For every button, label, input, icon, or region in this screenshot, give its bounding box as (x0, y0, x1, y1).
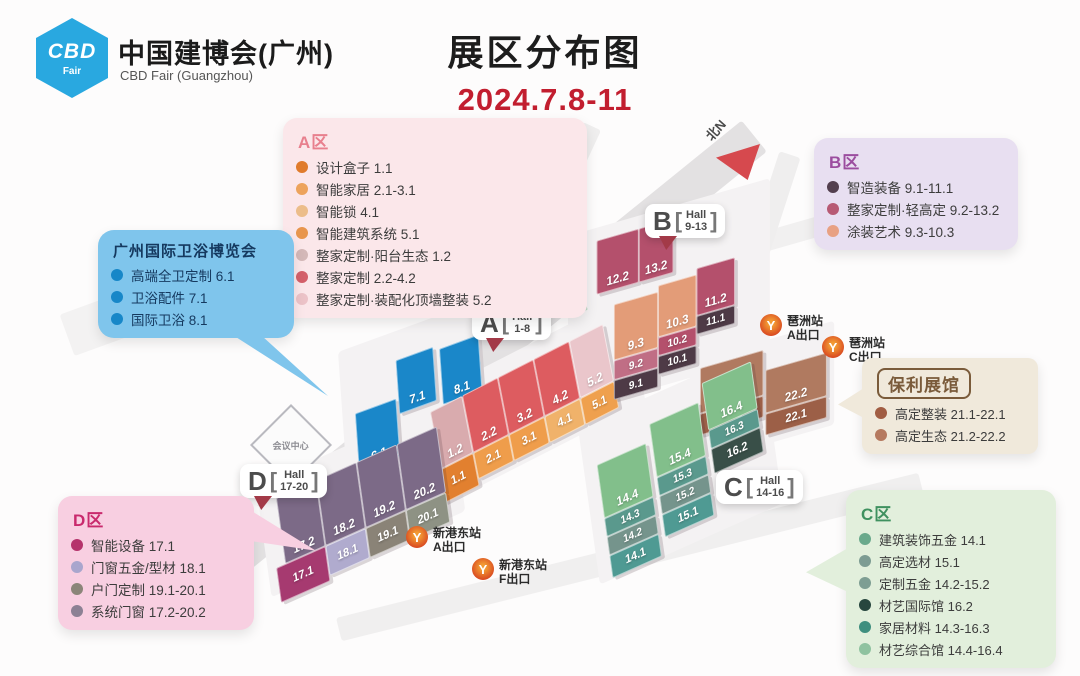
legend-item-label: 智能锁 4.1 (316, 201, 379, 221)
legend-poly-pavilion: 保利展馆 高定整装 21.1-22.1高定生态 21.2-22.2 (862, 358, 1038, 454)
hall-badge-letter: D (248, 468, 267, 494)
legend-area-c: C区 建筑装饰五金 14.1高定选材 15.1定制五金 14.2-15.2材艺国… (846, 490, 1056, 668)
legend-bath-expo: 广州国际卫浴博览会 高端全卫定制 6.1卫浴配件 7.1国际卫浴 8.1 (98, 230, 294, 338)
legend-color-dot (859, 621, 871, 633)
legend-item: 智能锁 4.1 (296, 200, 574, 222)
legend-item: 智能建筑系统 5.1 (296, 222, 574, 244)
legend-color-dot (859, 577, 871, 589)
hall-badge-range: Hall14-16 (756, 475, 784, 499)
legend-item: 整家定制·阳台生态 1.2 (296, 244, 574, 266)
bracket-glyph: ] (710, 210, 717, 232)
legend-item: 高定生态 21.2-22.2 (875, 424, 1025, 446)
legend-item-label: 智能家居 2.1-3.1 (316, 179, 416, 199)
legend-item-label: 整家定制·装配化顶墙整装 5.2 (316, 289, 492, 309)
callout-tail (838, 388, 864, 418)
hall-number-label: 17.1 (279, 558, 328, 592)
legend-area-d: D区 智能设备 17.1门窗五金/型材 18.1户门定制 19.1-20.1系统… (58, 496, 254, 630)
legend-item-label: 设计盒子 1.1 (316, 157, 393, 177)
hall-number-label: 1.1 (440, 464, 476, 494)
legend-color-dot (859, 599, 871, 611)
legend-color-dot (859, 643, 871, 655)
hall-badge-letter: B (653, 208, 672, 234)
legend-color-dot (296, 183, 308, 195)
legend-item: 材艺国际馆 16.2 (859, 594, 1043, 616)
legend-color-dot (296, 205, 308, 217)
hall-number-label: 18.1 (328, 537, 368, 566)
event-dates: 2024.7.8-11 (380, 82, 710, 118)
hall-badge-range: Hall9-13 (685, 209, 707, 233)
legend-color-dot (827, 225, 839, 237)
legend-item-label: 系统门窗 17.2-20.2 (91, 601, 206, 621)
legend-item-label: 智造装备 9.1-11.1 (847, 177, 953, 197)
hall-badge-range: Hall17-20 (280, 469, 308, 493)
legend-color-dot (875, 429, 887, 441)
legend-color-dot (296, 249, 308, 261)
legend-item-label: 整家定制·轻高定 9.2-13.2 (847, 199, 999, 219)
metro-icon: Y (760, 314, 782, 336)
legend-item-label: 整家定制·阳台生态 1.2 (316, 245, 451, 265)
hall-badge-b: B [ Hall9-13 ] (645, 204, 725, 238)
legend-item: 智能设备 17.1 (71, 534, 241, 556)
legend-color-dot (827, 203, 839, 215)
hall-badge-d: D [ Hall17-20 ] (240, 464, 327, 498)
north-arrow: 北N (694, 112, 774, 202)
legend-item: 材艺综合馆 14.4-16.4 (859, 638, 1043, 660)
hall-number-label: 19.1 (368, 519, 408, 548)
north-label: 北N (701, 115, 730, 144)
callout-tail (806, 548, 848, 592)
legend-title: B区 (829, 148, 1005, 173)
legend-item: 国际卫浴 8.1 (111, 308, 281, 330)
legend-item: 高定整装 21.1-22.1 (875, 402, 1025, 424)
legend-item-label: 高定整装 21.1-22.1 (895, 404, 1006, 423)
legend-item-label: 户门定制 19.1-20.1 (91, 579, 206, 599)
poster-title-block: 展区分布图 2024.7.8-11 (380, 24, 710, 118)
legend-item-label: 国际卫浴 8.1 (131, 309, 208, 329)
legend-color-dot (859, 555, 871, 567)
legend-color-dot (71, 539, 83, 551)
legend-item-label: 涂装艺术 9.3-10.3 (847, 221, 954, 241)
legend-color-dot (296, 227, 308, 239)
metro-icon: Y (822, 336, 844, 358)
organizer-name-cn: 中国建博会(广州) (118, 32, 334, 71)
legend-title: 保利展馆 (877, 368, 1025, 399)
legend-item: 建筑装饰五金 14.1 (859, 528, 1043, 550)
callout-tail (218, 334, 328, 396)
legend-item: 系统门窗 17.2-20.2 (71, 600, 241, 622)
legend-item: 整家定制·装配化顶墙整装 5.2 (296, 288, 574, 310)
legend-color-dot (71, 561, 83, 573)
bracket-glyph: [ (270, 470, 277, 492)
legend-item: 智能家居 2.1-3.1 (296, 178, 574, 200)
bracket-glyph: ] (311, 470, 318, 492)
metro-label: 琶洲站A出口 (787, 314, 823, 342)
page-title: 展区分布图 (380, 24, 710, 76)
legend-color-dot (296, 161, 308, 173)
metro-label: 新港东站F出口 (499, 558, 547, 586)
legend-color-dot (71, 583, 83, 595)
legend-title: C区 (861, 500, 1043, 525)
logo-text: CBD (48, 40, 97, 64)
legend-color-dot (71, 605, 83, 617)
legend-item-label: 门窗五金/型材 18.1 (91, 557, 206, 577)
metro-marker-pazhou-a: Y 琶洲站A出口 (760, 314, 823, 342)
legend-item: 门窗五金/型材 18.1 (71, 556, 241, 578)
legend-item-label: 卫浴配件 7.1 (131, 287, 208, 307)
logo-subtext: Fair (63, 66, 81, 77)
legend-title: 广州国际卫浴博览会 (113, 240, 281, 261)
legend-item-label: 材艺国际馆 16.2 (879, 596, 973, 615)
legend-area-b: B区 智造装备 9.1-11.1整家定制·轻高定 9.2-13.2涂装艺术 9.… (814, 138, 1018, 250)
legend-item: 智造装备 9.1-11.1 (827, 176, 1005, 198)
cbd-fair-logo: CBD Fair (36, 18, 108, 98)
legend-title: A区 (298, 128, 574, 153)
metro-marker-xingangdong-f: Y 新港东站F出口 (472, 558, 547, 586)
metro-marker-xingangdong-a: Y 新港东站A出口 (406, 526, 481, 554)
legend-color-dot (859, 533, 871, 545)
legend-item: 整家定制·轻高定 9.2-13.2 (827, 198, 1005, 220)
legend-color-dot (875, 407, 887, 419)
legend-item: 涂装艺术 9.3-10.3 (827, 220, 1005, 242)
north-arrow-icon (716, 144, 760, 180)
legend-item-label: 智能设备 17.1 (91, 535, 175, 555)
bracket-glyph: ] (787, 476, 794, 498)
legend-color-dot (111, 313, 123, 325)
legend-item-label: 智能建筑系统 5.1 (316, 223, 420, 243)
legend-title: D区 (73, 506, 241, 531)
legend-item: 卫浴配件 7.1 (111, 286, 281, 308)
organizer-name-en: CBD Fair (Guangzhou) (120, 68, 253, 83)
legend-color-dot (111, 291, 123, 303)
legend-area-a: A区 设计盒子 1.1智能家居 2.1-3.1智能锁 4.1智能建筑系统 5.1… (283, 118, 587, 318)
legend-item-label: 建筑装饰五金 14.1 (879, 530, 986, 549)
legend-item: 定制五金 14.2-15.2 (859, 572, 1043, 594)
legend-item-label: 高定生态 21.2-22.2 (895, 426, 1006, 445)
legend-color-dot (296, 271, 308, 283)
legend-color-dot (111, 269, 123, 281)
legend-item-label: 定制五金 14.2-15.2 (879, 574, 990, 593)
bracket-glyph: [ (675, 210, 682, 232)
legend-item: 整家定制 2.2-4.2 (296, 266, 574, 288)
legend-color-dot (296, 293, 308, 305)
legend-item-label: 高端全卫定制 6.1 (131, 265, 235, 285)
legend-item: 高定选材 15.1 (859, 550, 1043, 572)
bracket-glyph: [ (746, 476, 753, 498)
convention-center-label: 会议中心 (273, 438, 309, 451)
metro-icon: Y (406, 526, 428, 548)
legend-item: 高端全卫定制 6.1 (111, 264, 281, 286)
hall-badge-c: C [ Hall14-16 ] (716, 470, 803, 504)
legend-item-label: 整家定制 2.2-4.2 (316, 267, 416, 287)
exhibition-map-poster: 6.17.18.11.22.23.24.25.21.12.13.14.15.11… (0, 0, 1080, 676)
hall-badge-letter: C (724, 474, 743, 500)
legend-color-dot (827, 181, 839, 193)
legend-item-label: 材艺综合馆 14.4-16.4 (879, 640, 1003, 659)
legend-item-label: 家居材料 14.3-16.3 (879, 618, 990, 637)
metro-icon: Y (472, 558, 494, 580)
metro-label: 新港东站A出口 (433, 526, 481, 554)
legend-item: 家居材料 14.3-16.3 (859, 616, 1043, 638)
legend-item-label: 高定选材 15.1 (879, 552, 960, 571)
legend-item: 户门定制 19.1-20.1 (71, 578, 241, 600)
legend-item: 设计盒子 1.1 (296, 156, 574, 178)
